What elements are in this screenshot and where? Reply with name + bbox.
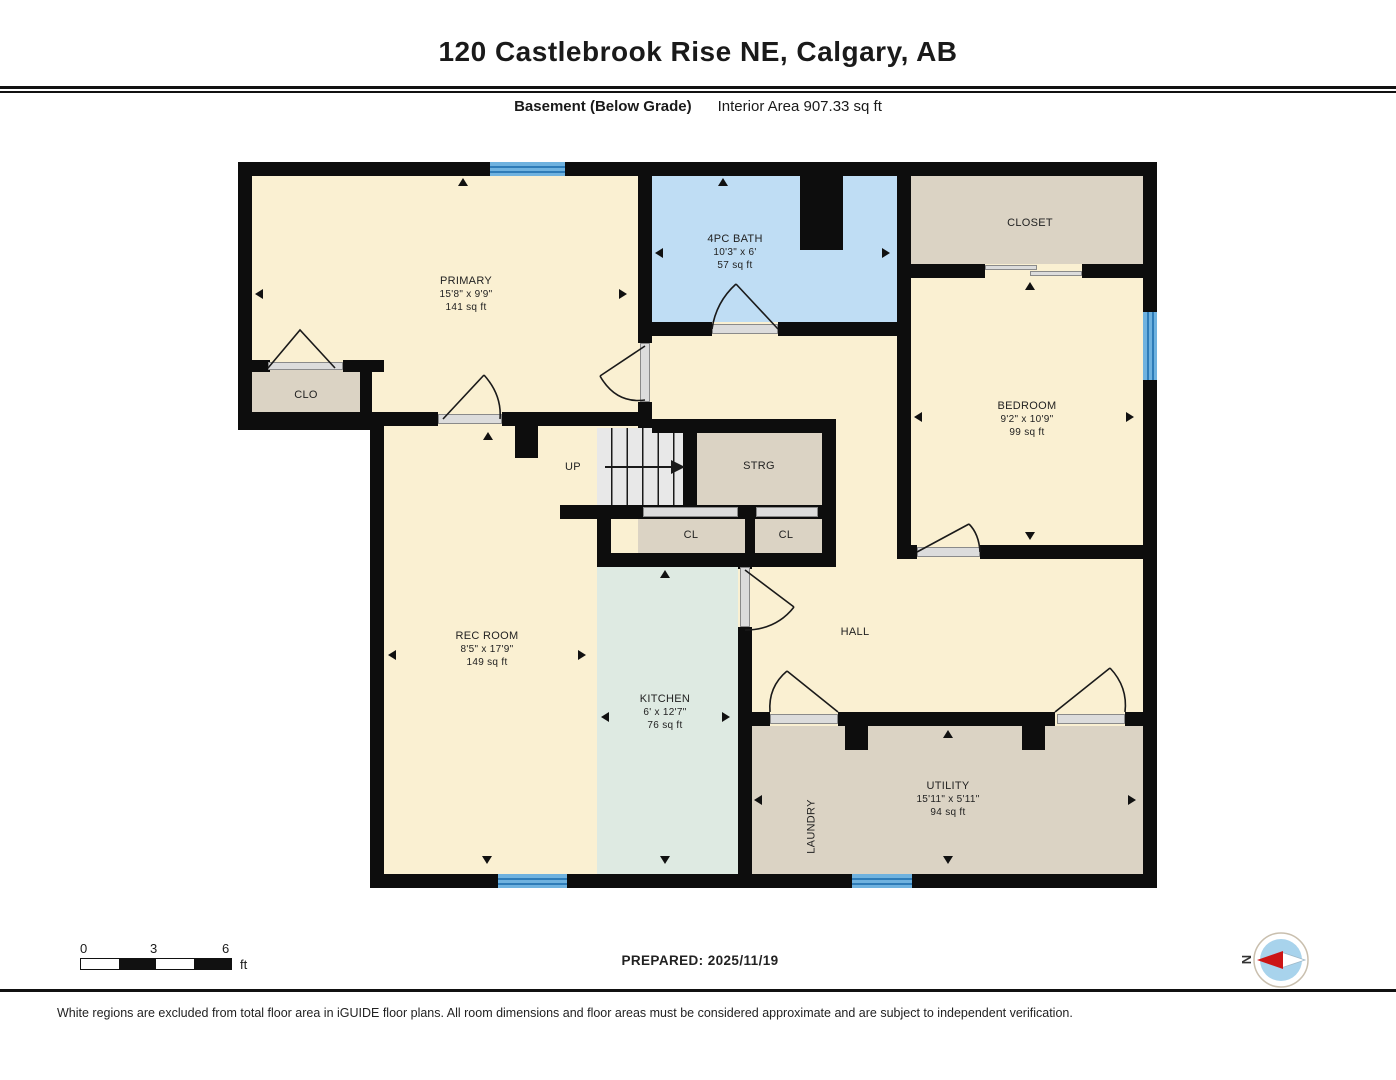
dim-arrow-down <box>660 856 670 864</box>
label-up: UP <box>553 461 593 474</box>
dim-arrow-left <box>914 412 922 422</box>
label-closet: CLOSET <box>970 217 1090 230</box>
disclaimer-text: White regions are excluded from total fl… <box>57 1006 1073 1020</box>
label-bedroom: BEDROOM 9'2" x 10'9" 99 sq ft <box>947 400 1107 439</box>
dim-arrow-up <box>1025 282 1035 290</box>
stairs-up-arrowhead <box>671 460 685 474</box>
dim-arrow-up <box>483 432 493 440</box>
label-bath: 4PC BATH 10'3" x 6' 57 sq ft <box>655 233 815 272</box>
prepared-date: PREPARED: 2025/11/19 <box>621 953 778 968</box>
header-divider <box>0 86 1396 89</box>
scale-unit: ft <box>240 957 247 972</box>
page-title: 120 Castlebrook Rise NE, Calgary, AB <box>0 36 1396 68</box>
floor-subtitle: Basement (Below Grade)Interior Area 907.… <box>0 98 1396 115</box>
floor-label: Basement (Below Grade) <box>514 98 692 115</box>
dim-arrow-right <box>882 248 890 258</box>
floorplan-page: 120 Castlebrook Rise NE, Calgary, AB Bas… <box>0 0 1396 1080</box>
dim-arrow-up <box>660 570 670 578</box>
dim-arrow-right <box>1128 795 1136 805</box>
header-divider-thin <box>0 91 1396 93</box>
compass: N <box>1243 928 1313 992</box>
scale-tick-6: 6 <box>222 941 229 956</box>
label-utility: UTILITY 15'11" x 5'11" 94 sq ft <box>868 780 1028 819</box>
dim-arrow-up <box>458 178 468 186</box>
compass-north-label: N <box>1239 955 1254 964</box>
footer-divider <box>0 989 1396 992</box>
floorplan: PRIMARY 15'8" x 9'9" 141 sq ft 4PC BATH … <box>238 162 1157 888</box>
label-rec-room: REC ROOM 8'5" x 17'9" 149 sq ft <box>407 630 567 669</box>
label-strg: STRG <box>699 460 819 473</box>
dim-arrow-down <box>1025 532 1035 540</box>
interior-area-label: Interior Area 907.33 sq ft <box>718 98 882 115</box>
label-hall: HALL <box>795 626 915 639</box>
dim-arrow-right <box>619 289 627 299</box>
dim-arrow-down <box>482 856 492 864</box>
dim-arrow-up <box>718 178 728 186</box>
dim-arrow-left <box>255 289 263 299</box>
label-cl-right: CL <box>726 529 846 542</box>
dim-arrow-left <box>754 795 762 805</box>
label-kitchen: KITCHEN 6' x 12'7" 76 sq ft <box>585 693 745 732</box>
label-laundry: LAUNDRY <box>806 787 819 867</box>
scale-bar: 0 3 6 ft <box>78 941 298 981</box>
dim-arrow-right <box>578 650 586 660</box>
dim-arrow-down <box>943 856 953 864</box>
scale-tick-0: 0 <box>80 941 87 956</box>
scale-bar-track <box>80 958 232 970</box>
dim-arrow-up <box>943 730 953 738</box>
dim-arrow-right <box>1126 412 1134 422</box>
label-primary: PRIMARY 15'8" x 9'9" 141 sq ft <box>386 275 546 314</box>
dim-arrow-left <box>388 650 396 660</box>
label-clo: CLO <box>246 389 366 402</box>
scale-tick-3: 3 <box>150 941 157 956</box>
